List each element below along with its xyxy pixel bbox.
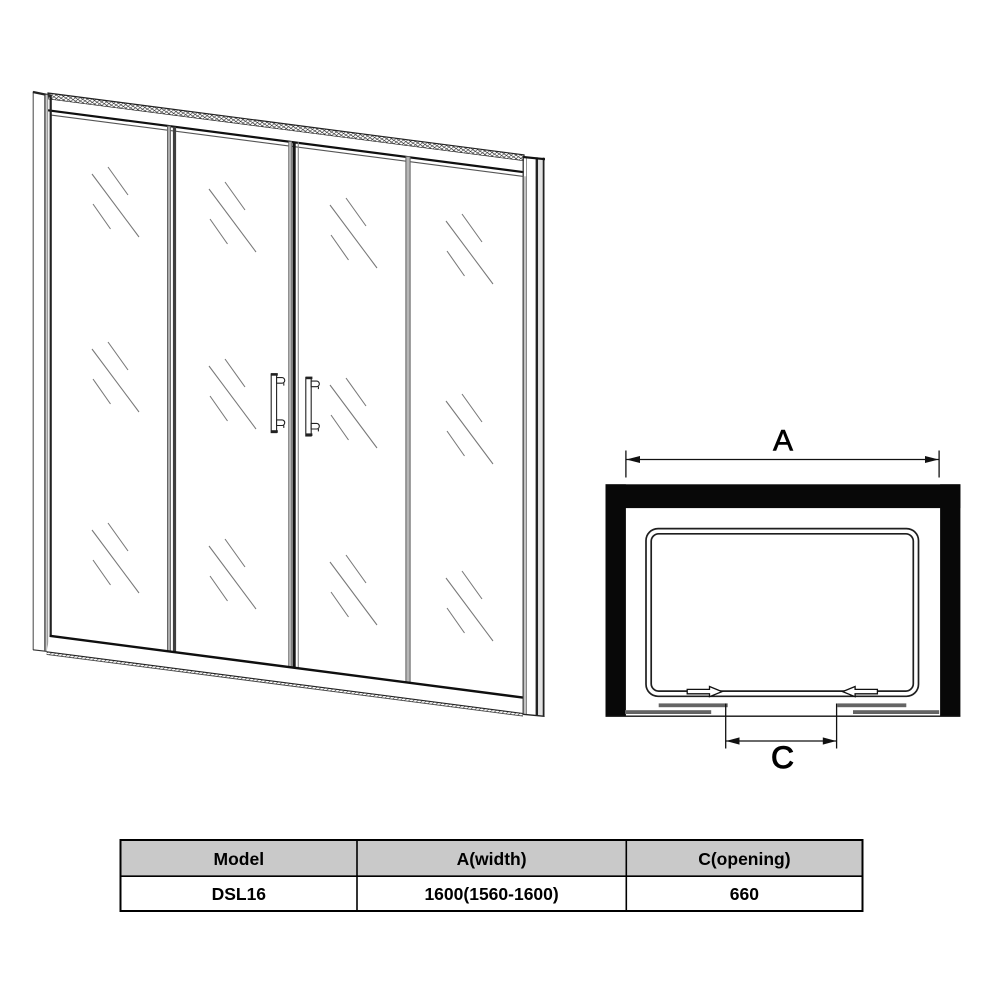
svg-text:C(opening): C(opening) bbox=[698, 849, 790, 869]
svg-text:1600(1560-1600): 1600(1560-1600) bbox=[424, 884, 558, 904]
svg-text:DSL16: DSL16 bbox=[212, 884, 267, 904]
svg-text:C: C bbox=[771, 739, 794, 775]
svg-text:A: A bbox=[773, 425, 793, 458]
svg-text:A(width): A(width) bbox=[457, 849, 527, 869]
svg-text:Model: Model bbox=[214, 849, 265, 869]
svg-text:660: 660 bbox=[730, 884, 759, 904]
